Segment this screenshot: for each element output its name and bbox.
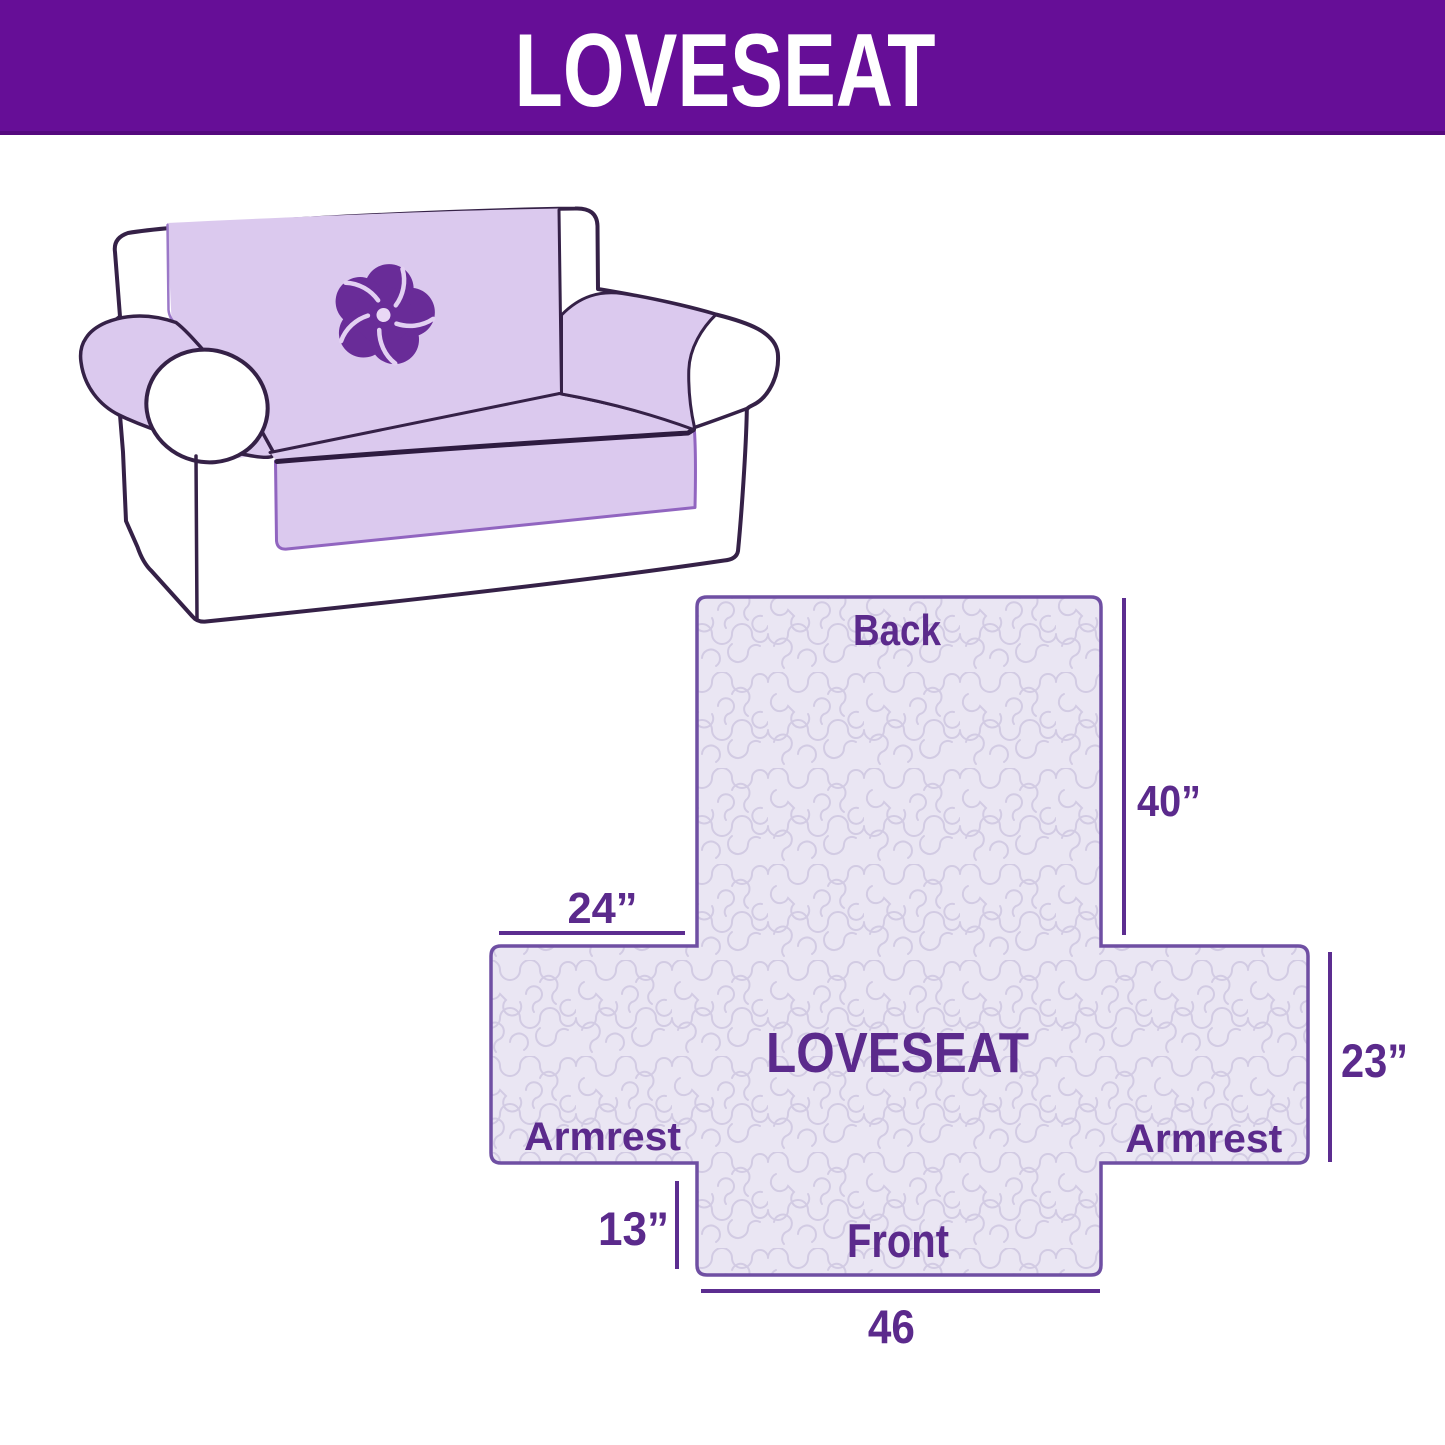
svg-text:Front: Front xyxy=(847,1214,949,1267)
svg-text:13”: 13” xyxy=(598,1202,669,1255)
svg-text:46: 46 xyxy=(868,1300,915,1353)
svg-text:Back: Back xyxy=(853,606,941,655)
svg-text:Armrest: Armrest xyxy=(524,1115,681,1159)
svg-text:Armrest: Armrest xyxy=(1125,1117,1282,1161)
svg-text:40”: 40” xyxy=(1137,777,1201,826)
svg-text:LOVESEAT: LOVESEAT xyxy=(515,13,936,129)
svg-text:LOVESEAT: LOVESEAT xyxy=(766,1021,1029,1085)
svg-text:24”: 24” xyxy=(568,884,638,933)
svg-text:23”: 23” xyxy=(1341,1034,1408,1087)
